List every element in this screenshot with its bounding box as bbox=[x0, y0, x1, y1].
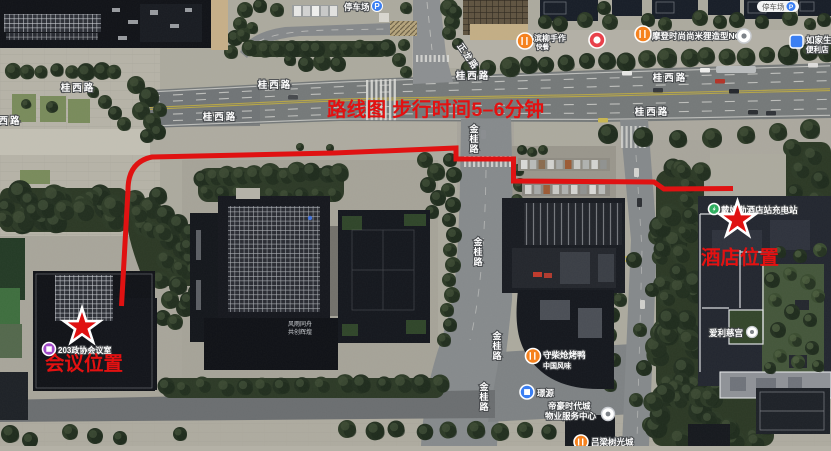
svg-text:爱利慈宫: 爱利慈宫 bbox=[709, 328, 743, 338]
svg-text:停车场: 停车场 bbox=[762, 2, 785, 12]
svg-text:金桂路: 金桂路 bbox=[468, 123, 479, 154]
svg-text:桂西路: 桂西路 bbox=[634, 106, 670, 118]
svg-text:帝豪时代城: 帝豪时代城 bbox=[548, 401, 591, 411]
svg-text:桂西路: 桂西路 bbox=[652, 72, 688, 84]
svg-text:P: P bbox=[374, 2, 380, 11]
svg-text:滨柳手作: 滨柳手作 bbox=[534, 33, 566, 43]
svg-text:桂西路: 桂西路 bbox=[60, 82, 96, 94]
svg-text:金桂路: 金桂路 bbox=[491, 330, 502, 361]
svg-text:物业服务中心: 物业服务中心 bbox=[545, 411, 597, 421]
svg-text:桂西路: 桂西路 bbox=[257, 79, 293, 91]
svg-text:西路: 西路 bbox=[0, 115, 22, 127]
svg-text:桂西路: 桂西路 bbox=[455, 70, 491, 82]
svg-text:金桂路: 金桂路 bbox=[472, 236, 483, 267]
svg-text:金桂路: 金桂路 bbox=[478, 381, 489, 412]
svg-text:快餐: 快餐 bbox=[536, 42, 550, 51]
svg-text:会议位置: 会议位置 bbox=[45, 352, 123, 375]
svg-text:便利店: 便利店 bbox=[806, 44, 829, 54]
svg-text:桂西路: 桂西路 bbox=[202, 111, 238, 123]
svg-text:P: P bbox=[789, 4, 794, 11]
svg-text:摩登时尚尚米狸造型NO.2: 摩登时尚尚米狸造型NO.2 bbox=[651, 31, 749, 41]
svg-text:酒店位置: 酒店位置 bbox=[701, 246, 779, 269]
svg-text:路线图 步行时间5–6分钟: 路线图 步行时间5–6分钟 bbox=[327, 98, 544, 121]
svg-text:中国风味: 中国风味 bbox=[543, 361, 571, 370]
svg-text:璟源: 璟源 bbox=[537, 388, 555, 398]
svg-text:停车场: 停车场 bbox=[344, 2, 370, 12]
svg-text:守柴炝烤鸭: 守柴炝烤鸭 bbox=[543, 350, 586, 360]
svg-text:吕梁树光城: 吕梁树光城 bbox=[591, 437, 634, 446]
svg-text:如家生: 如家生 bbox=[806, 35, 831, 45]
